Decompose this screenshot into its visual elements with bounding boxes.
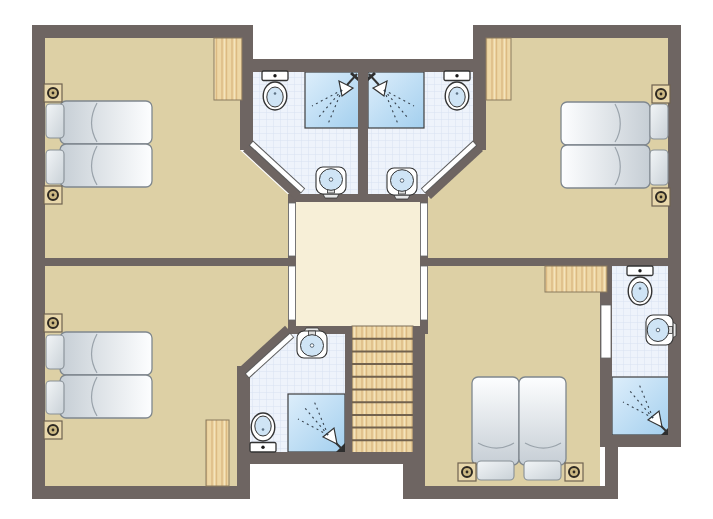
mattress (60, 332, 152, 375)
mattress (561, 145, 650, 188)
wall (605, 435, 618, 499)
door (289, 266, 296, 320)
pillow (650, 104, 668, 139)
wardrobe (545, 266, 607, 292)
door (289, 203, 296, 256)
wall (237, 366, 250, 499)
pillow (46, 104, 64, 138)
mattress (561, 102, 650, 145)
wardrobe (206, 420, 229, 486)
nightstand-with-lamp (44, 421, 62, 439)
wall (413, 326, 425, 464)
mattress (472, 377, 519, 465)
door (421, 203, 428, 256)
wardrobe (214, 38, 242, 100)
wall (428, 258, 681, 266)
mattress (519, 377, 566, 465)
mattress (60, 375, 152, 418)
toilet-icon (627, 266, 653, 305)
pillow (477, 461, 514, 480)
wall (32, 486, 250, 499)
staircase (352, 326, 413, 453)
washbasin-icon (316, 167, 346, 198)
nightstand-with-lamp (652, 188, 670, 206)
nightstand-with-lamp (44, 84, 62, 102)
nightstand-with-lamp (458, 463, 476, 481)
door (601, 305, 611, 358)
nightstand-with-lamp (565, 463, 583, 481)
toilet-icon (262, 71, 288, 110)
pillow (524, 461, 561, 480)
mattress (60, 101, 152, 144)
door (421, 266, 428, 320)
toilet-icon (250, 413, 276, 452)
pillow (650, 150, 668, 185)
floor-plan-canvas (0, 0, 713, 519)
pillow (46, 335, 64, 369)
shower-tray (305, 72, 361, 128)
washbasin-icon (646, 315, 676, 345)
wall (473, 38, 486, 150)
landing-hall-floor (292, 198, 424, 330)
nightstand-with-lamp (44, 186, 62, 204)
shower-tray (368, 72, 424, 128)
pillow (46, 150, 64, 184)
washbasin-icon (387, 168, 417, 199)
nightstand-with-lamp (44, 314, 62, 332)
nightstand-with-lamp (652, 85, 670, 103)
wall (403, 486, 618, 499)
wall (32, 25, 253, 38)
wall (345, 334, 352, 453)
wall (237, 452, 413, 464)
mattress (60, 144, 152, 187)
pillow (46, 381, 64, 414)
wardrobe (486, 38, 511, 100)
floor-plan (0, 0, 713, 519)
wall (358, 59, 368, 202)
toilet-icon (444, 71, 470, 110)
wall (32, 258, 296, 266)
wall (473, 25, 681, 38)
washbasin-icon (297, 328, 327, 358)
